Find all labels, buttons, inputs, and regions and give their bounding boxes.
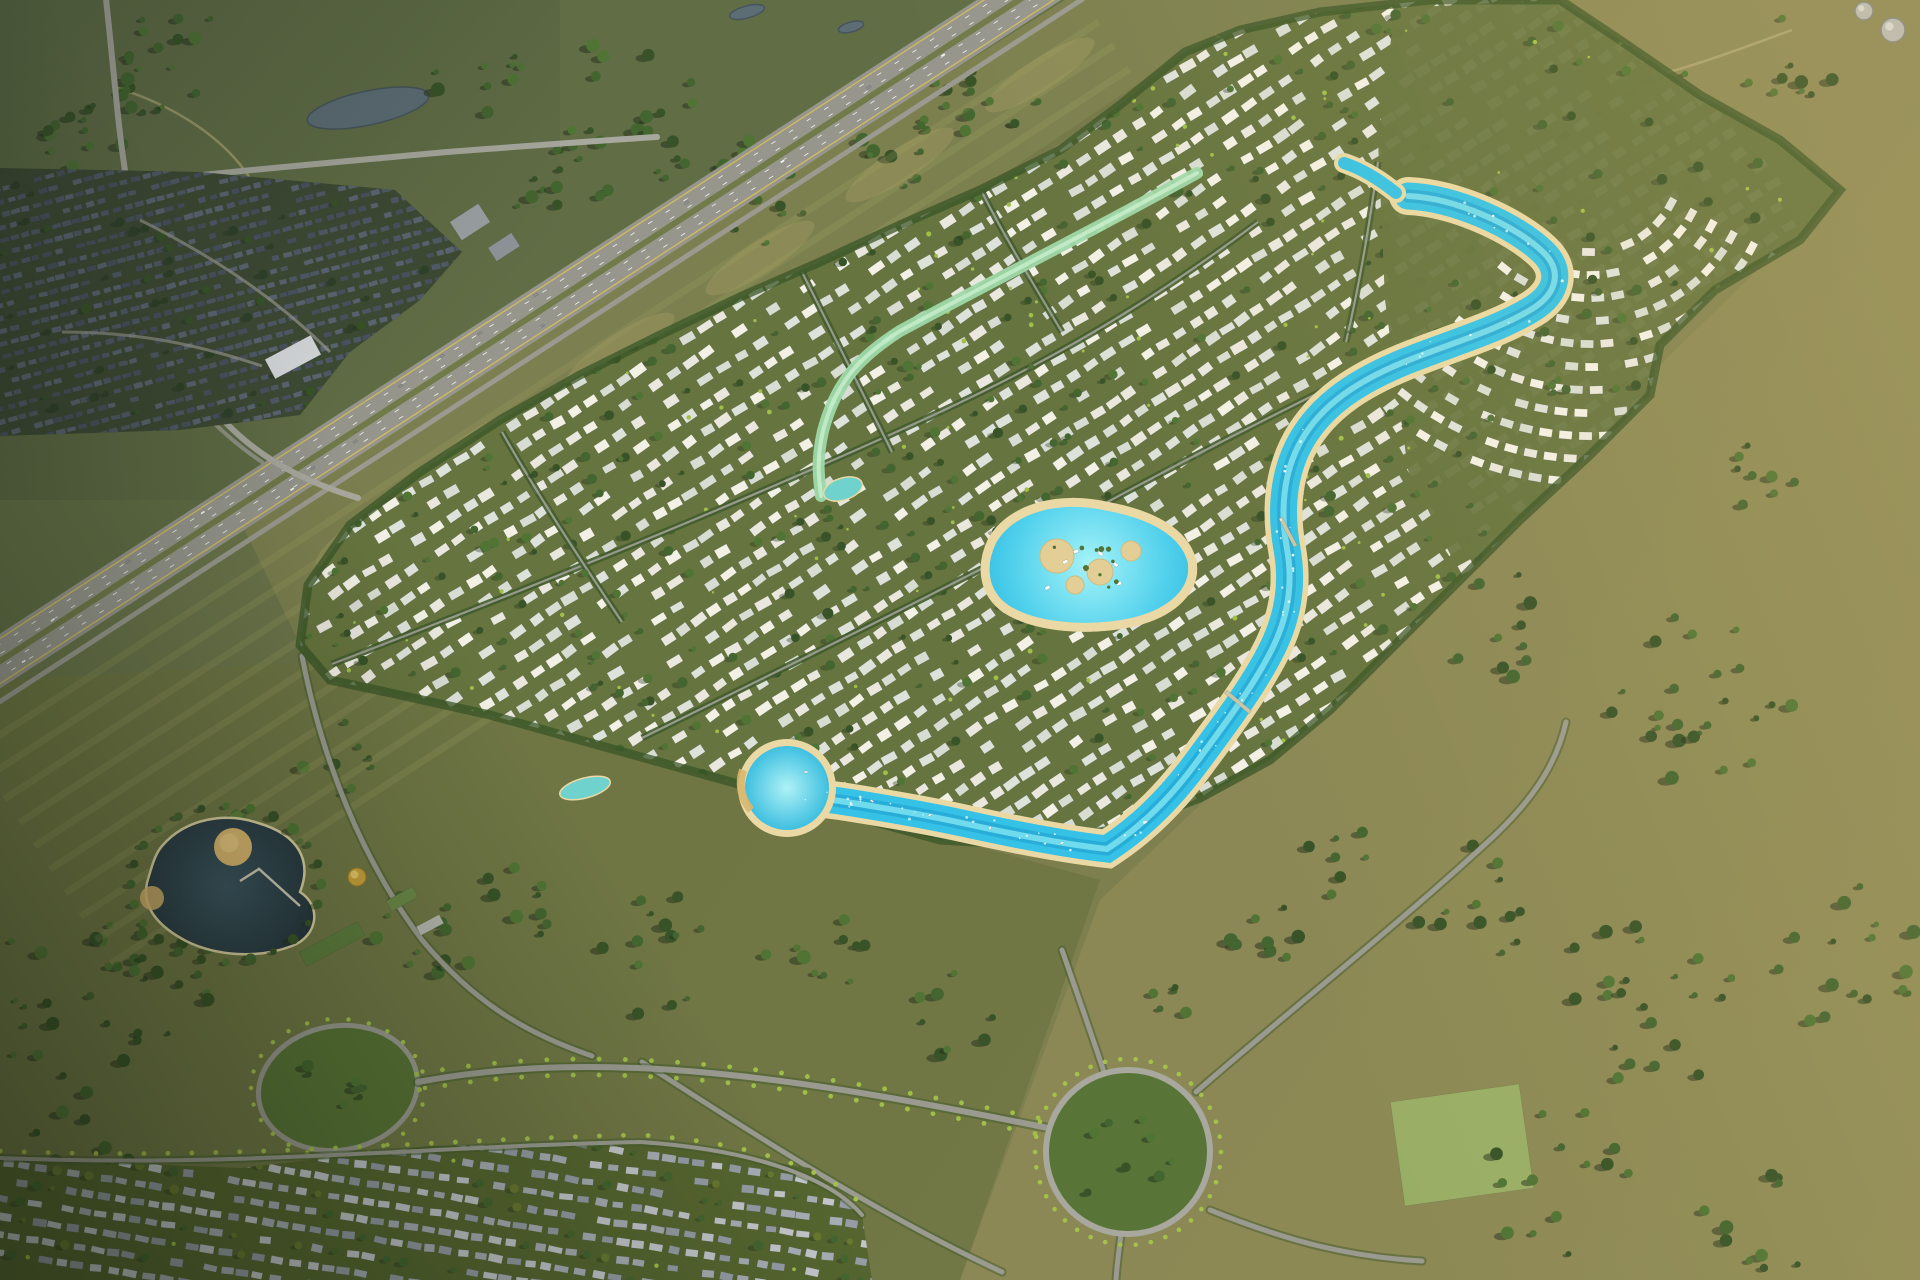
aerial-masterplan-screenshot	[0, 0, 1920, 1280]
light-overlays	[0, 0, 1920, 1280]
aerial-render-canvas	[0, 0, 1920, 1280]
